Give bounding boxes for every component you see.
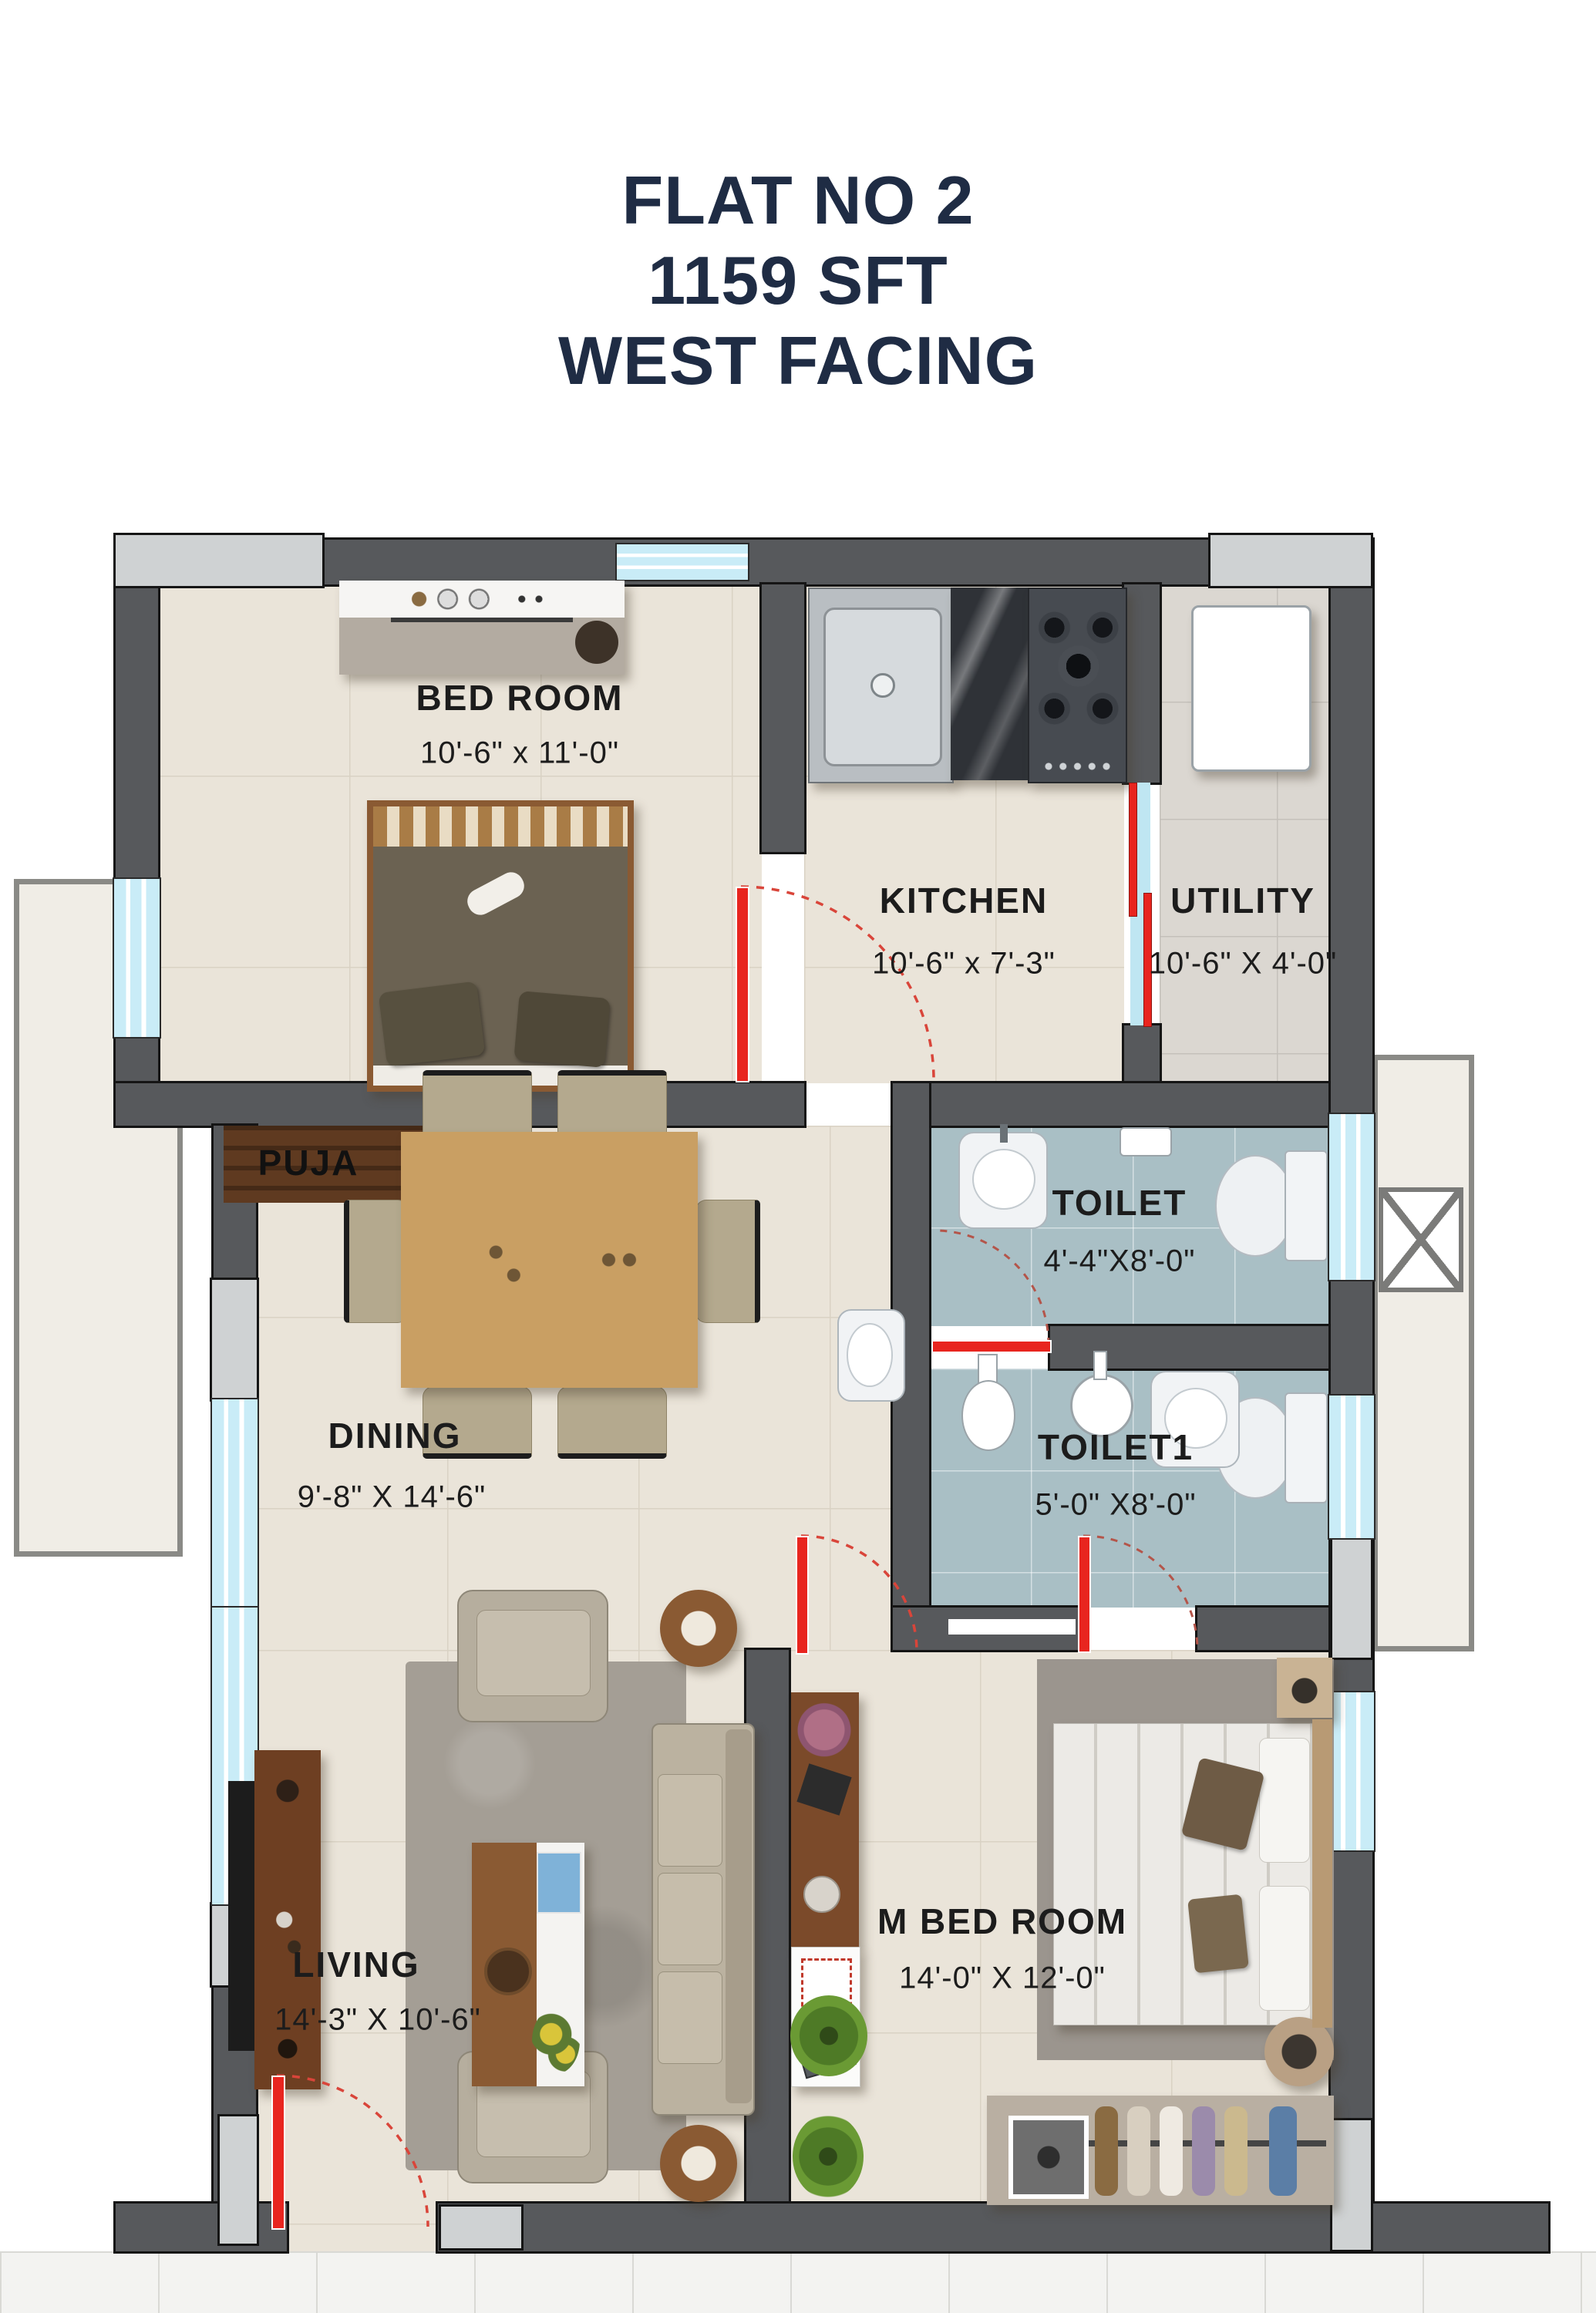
sofa: [652, 1723, 755, 2116]
dining-table: [401, 1132, 698, 1388]
toilet1-window: [1329, 1396, 1374, 1538]
main-entrance-door: [271, 2076, 285, 2230]
dining-chair-5: [344, 1200, 409, 1323]
dresser-decor: [575, 621, 618, 664]
dining-chair-4: [557, 1386, 667, 1459]
toilet1-shower-stem: [1093, 1351, 1107, 1380]
toilet-wc-tank: [1285, 1150, 1328, 1261]
toilet1-dims: 5'-0" X8'-0": [1035, 1488, 1196, 1523]
toilet1-label: TOILET1: [1038, 1426, 1194, 1468]
bedroom-left-window: [114, 879, 160, 1037]
wardrobe: [987, 2096, 1334, 2205]
toilet-label: TOILET: [1052, 1182, 1187, 1224]
bedroom-bed: [367, 800, 634, 1092]
sofa-cushion-1: [658, 1774, 722, 1867]
coffee-table: [472, 1843, 584, 2086]
puja-label: PUJA: [258, 1142, 359, 1183]
mbed-headboard: [1312, 1719, 1332, 2028]
sink-basin: [823, 608, 942, 766]
hanging-clothes-6: [1269, 2106, 1297, 2196]
toilet-door: [931, 1340, 1052, 1353]
toilet-basin-bowl: [972, 1149, 1035, 1210]
tv-screen: [228, 1781, 254, 2051]
mbed-pillow-brown-1: [1181, 1757, 1265, 1851]
kitchen-dims: 10'-6" x 7'-3": [872, 947, 1056, 981]
utility-label: UTILITY: [1170, 880, 1315, 921]
duct-x-icon: [1379, 1187, 1463, 1292]
mbed-dresser: [791, 1692, 859, 1947]
bedroom-dims: 10'-6" x 11'-0": [420, 736, 619, 771]
mbedroom-dims: 14'-0" X 12'-0": [899, 1961, 1106, 1996]
title-facing: WEST FACING: [0, 321, 1596, 401]
dresser-top: [339, 581, 625, 618]
column-top-right: [1210, 535, 1371, 586]
living-label: LIVING: [292, 1944, 419, 1985]
living-dims: 14'-3" X 10'-6": [274, 2003, 481, 2038]
sofa-cushion-3: [658, 1971, 722, 2064]
title-flat-no: FLAT NO 2: [0, 160, 1596, 241]
toilet-wash-basin: [958, 1132, 1048, 1229]
armchair-top: [457, 1590, 608, 1722]
dining-chair-6: [695, 1200, 760, 1323]
bedroom-label: BED ROOM: [416, 677, 624, 719]
dining-window: [212, 1399, 258, 1608]
bedroom-dresser: [339, 581, 625, 675]
side-table-top: [660, 1590, 737, 1667]
toilet1-wc-tank: [1285, 1392, 1328, 1503]
hanging-clothes-1: [1095, 2106, 1118, 2196]
mbedroom-door: [796, 1536, 809, 1655]
toilet-wc-bowl: [1215, 1155, 1295, 1257]
hanging-clothes-2: [1127, 2106, 1150, 2196]
sink-drain: [870, 673, 895, 698]
plan-title: FLAT NO 2 1159 SFT WEST FACING: [0, 160, 1596, 401]
column-right-bottom: [1332, 2120, 1371, 2250]
kitchen-sink-unit: [808, 588, 954, 783]
plant-1: [790, 1995, 867, 2076]
mbed-dresser-mat: [796, 1763, 851, 1815]
utility-dims: 10'-6" X 4'-0": [1149, 947, 1337, 981]
tv-console: [254, 1750, 321, 2089]
toilet1-wall-fixture: [961, 1380, 1015, 1451]
side-table-bottom: [660, 2125, 737, 2202]
common-corridor: [0, 2251, 1596, 2313]
bed-pillow-2: [513, 991, 610, 1068]
coffee-table-flowers: [532, 2008, 580, 2074]
under-kitchen-wall: [893, 1083, 1372, 1126]
bottom-wall-right: [438, 2204, 1372, 2251]
bottom-wall-left: [116, 2204, 287, 2251]
bedroom-kitchen-wall: [762, 584, 804, 852]
right-duct-shaft: [1372, 1055, 1474, 1651]
sofa-back: [726, 1729, 752, 2103]
column-left-mid: [212, 1280, 257, 1399]
toilet1-door: [1078, 1536, 1091, 1653]
column-left-entrance: [220, 2116, 257, 2244]
coffee-table-magazine: [537, 1852, 581, 1914]
mbed-dresser-decor: [803, 1876, 840, 1913]
toilet-dims: 4'-4"X8'-0": [1044, 1244, 1196, 1279]
mbed-pillow-brown-2: [1187, 1894, 1249, 1974]
toilet-mixer: [1120, 1127, 1172, 1156]
bedroom-door: [736, 887, 749, 1082]
column-bottom-mid: [441, 2207, 521, 2248]
kitchen-utility-slider-rail-a: [1129, 783, 1137, 917]
hanging-clothes-3: [1160, 2106, 1183, 2196]
mbedroom-window: [1329, 1692, 1374, 1850]
dining-basin-bowl: [847, 1323, 892, 1387]
dining-dims: 9'-8" X 14'-6": [298, 1480, 486, 1515]
toilet1-threshold: [948, 1619, 1076, 1635]
hanging-clothes-4: [1192, 2106, 1215, 2196]
dresser-tv-line: [391, 618, 574, 622]
kitchen-utility-wall-upper: [1124, 584, 1160, 783]
kitchen-utility-wall-lower: [1124, 1025, 1160, 1083]
mbed-dresser-flowers: [797, 1700, 851, 1766]
bottom-wall-extension: [1372, 2204, 1548, 2251]
floor-plan-page: FLAT NO 2 1159 SFT WEST FACING: [0, 0, 1596, 2313]
column-right-toilet1: [1332, 1538, 1371, 1658]
mbed-pillow-white-2: [1259, 1886, 1310, 2011]
column-top-left: [116, 535, 322, 586]
toilet-basin-tap: [1000, 1124, 1008, 1143]
mbed-nightstand: [1277, 1658, 1332, 1718]
armchair-top-cushion: [476, 1610, 591, 1697]
kitchen-label: KITCHEN: [880, 880, 1048, 921]
kitchen-granite-counter: [951, 588, 1028, 780]
sofa-cushion-2: [658, 1873, 722, 1965]
title-area: 1159 SFT: [0, 241, 1596, 321]
bedroom-top-window: [617, 544, 748, 580]
bed-pillow-accent: [463, 868, 529, 920]
mbed-pillow-white-1: [1259, 1738, 1310, 1863]
dining-label: DINING: [328, 1415, 462, 1456]
mbedroom-label: M BED ROOM: [877, 1901, 1127, 1942]
gas-stove: [1028, 588, 1127, 783]
plant-2: [793, 2114, 864, 2199]
toilet-window: [1329, 1114, 1374, 1280]
coffee-table-bowl: [484, 1948, 532, 1995]
hanging-clothes-5: [1224, 2106, 1248, 2196]
wardrobe-doormat: [1008, 2116, 1089, 2199]
bed-head-throw: [373, 806, 628, 847]
bed-pillow-1: [379, 981, 486, 1067]
dining-wash-basin: [837, 1309, 905, 1402]
washing-machine: [1191, 605, 1311, 772]
